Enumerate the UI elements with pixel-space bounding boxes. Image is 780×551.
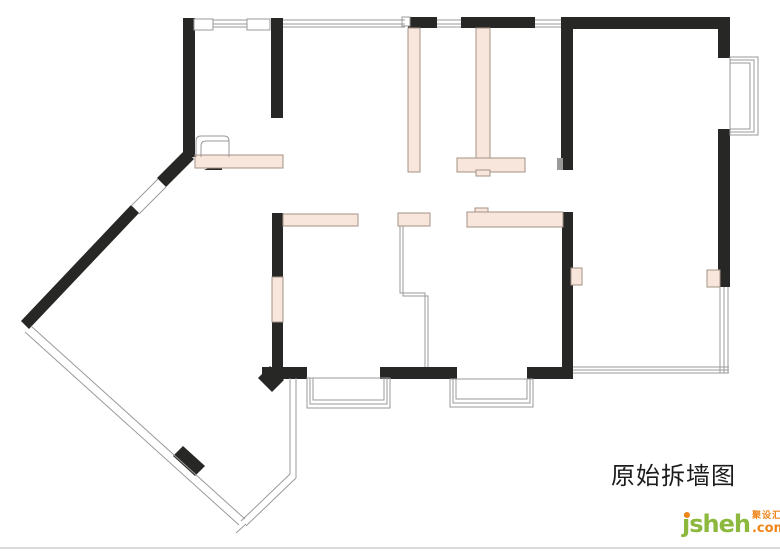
demolish-wall-hall: [467, 212, 563, 227]
demolish-wall-interior-left: [272, 277, 283, 322]
bay-window-bottom-left: [313, 378, 384, 400]
wall-top-right: [561, 17, 730, 29]
wall-bottom-right: [527, 367, 573, 379]
partition-line: [403, 226, 428, 367]
logo-suffix: .com: [752, 522, 780, 535]
wall-interior-left-lower: [272, 322, 283, 368]
demolish-wall-bedroom-b: [398, 213, 430, 226]
floor-plan-page: 原始拆墙图 jsheh 聚设汇 .com: [0, 0, 780, 551]
logo: jsheh 聚设汇 .com: [682, 512, 780, 536]
demolish-balcony-left: [571, 268, 582, 285]
diagonal-window-corner: [246, 478, 296, 526]
diagonal-window-upper: [139, 187, 166, 214]
window-box-a: [194, 19, 213, 30]
wall-livingroom-left-lower: [562, 212, 573, 367]
demolish-wall-kitchen-left: [408, 28, 420, 172]
diagonal-window-corner: [241, 474, 290, 521]
wall-top-b: [461, 17, 535, 28]
demolish-balcony-right: [707, 270, 720, 287]
logo-j-dot-icon: [684, 512, 690, 518]
diagonal-window-upper: [131, 179, 158, 206]
logo-tagline: 聚设汇: [752, 512, 780, 521]
logo-brand: jsheh: [682, 510, 750, 538]
wall-diagonal-chunk: [173, 446, 205, 476]
logo-right-column: 聚设汇 .com: [752, 512, 780, 535]
wall-bottom-middle: [380, 367, 457, 379]
wall-stub-gray: [557, 158, 563, 170]
wall-interior-left-upper: [272, 213, 283, 277]
wall-entry-vertical: [271, 18, 283, 118]
bay-window-right: [730, 63, 750, 129]
wall-right-lower: [718, 129, 730, 287]
wall-diagonal-lower: [21, 205, 139, 329]
wall-left-top-vertical: [183, 18, 195, 157]
wall-diagonal-upper: [157, 150, 194, 187]
demolish-wall-kitchen-tbar: [457, 158, 525, 172]
bay-window-bottom-middle: [456, 379, 527, 399]
window-box-b: [247, 19, 270, 30]
logo-brand-wrap: jsheh: [682, 512, 750, 536]
plan-title: 原始拆墙图: [611, 456, 741, 491]
wall-livingroom-left-upper: [561, 17, 573, 170]
demolish-wall-kitchen-notch: [476, 170, 490, 176]
demolish-wall-entry: [195, 155, 283, 168]
demolish-wall-kitchen-right: [476, 28, 490, 158]
diagonal-window-cap: [236, 524, 246, 533]
wall-right-upper: [718, 17, 730, 58]
diagonal-window-long: [31, 326, 245, 519]
wall-top-a: [408, 17, 437, 28]
diagonal-window-long: [25, 332, 239, 525]
demolish-wall-bedroom-a: [283, 214, 358, 226]
window-box-c: [402, 17, 410, 26]
footer-divider: [0, 547, 780, 549]
